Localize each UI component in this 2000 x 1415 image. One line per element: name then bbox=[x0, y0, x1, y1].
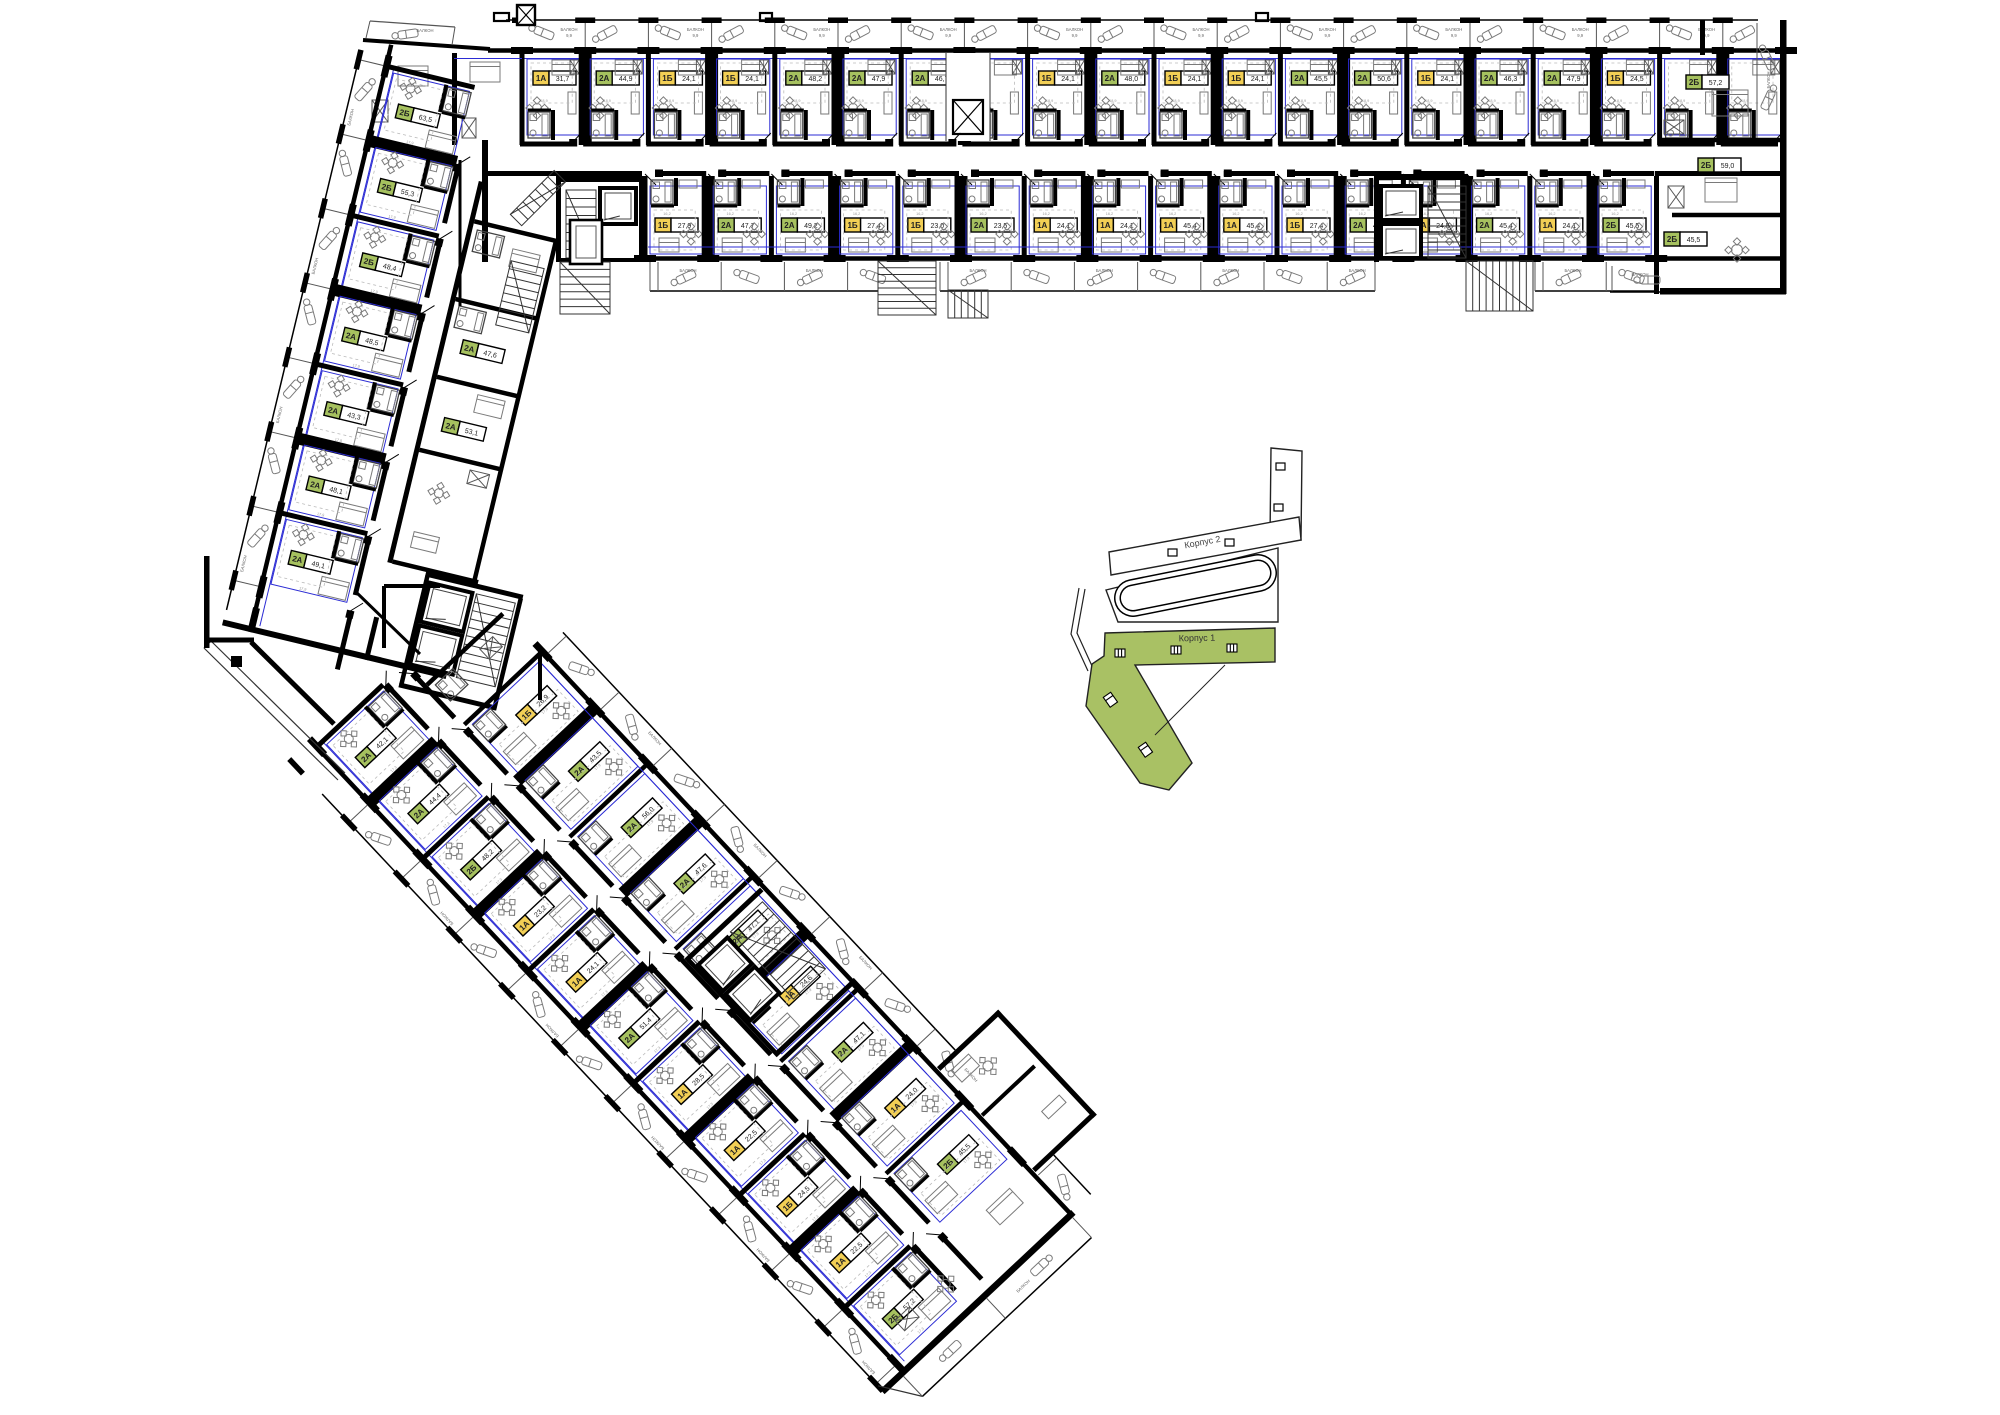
svg-text:1A: 1A bbox=[1037, 221, 1047, 230]
svg-text:9,9: 9,9 bbox=[819, 33, 825, 38]
svg-text:47,9: 47,9 bbox=[1567, 76, 1581, 83]
svg-text:47,9: 47,9 bbox=[872, 76, 886, 83]
svg-text:24,1: 24,1 bbox=[745, 76, 759, 83]
svg-text:1A: 1A bbox=[1227, 221, 1237, 230]
svg-text:БАЛКОН: БАЛКОН bbox=[687, 27, 704, 32]
svg-text:2Б: 2Б bbox=[1606, 221, 1616, 230]
svg-text:16,2: 16,2 bbox=[1232, 212, 1239, 216]
svg-text:48,0: 48,0 bbox=[1124, 76, 1138, 83]
svg-text:57,2: 57,2 bbox=[1709, 80, 1723, 87]
svg-text:БАЛКОН: БАЛКОН bbox=[970, 268, 987, 273]
svg-text:18,9: 18,9 bbox=[1172, 99, 1179, 103]
svg-text:1A: 1A bbox=[1543, 221, 1553, 230]
svg-text:1Б: 1Б bbox=[725, 74, 735, 83]
svg-text:9,9: 9,9 bbox=[1072, 33, 1078, 38]
svg-text:Корпус 1: Корпус 1 bbox=[1179, 633, 1216, 644]
svg-text:1Б: 1Б bbox=[1421, 74, 1431, 83]
svg-text:2A: 2A bbox=[1484, 74, 1494, 83]
svg-text:18,9: 18,9 bbox=[920, 99, 927, 103]
svg-text:18,9: 18,9 bbox=[730, 99, 737, 103]
svg-text:24,1: 24,1 bbox=[682, 76, 696, 83]
svg-text:48,2: 48,2 bbox=[808, 76, 822, 83]
svg-text:БАЛКОН: БАЛКОН bbox=[813, 27, 830, 32]
svg-text:16,2: 16,2 bbox=[790, 212, 797, 216]
svg-text:18,9: 18,9 bbox=[1046, 99, 1053, 103]
svg-text:24,1: 24,1 bbox=[1061, 76, 1075, 83]
svg-text:45,5: 45,5 bbox=[1314, 76, 1328, 83]
svg-text:18,9: 18,9 bbox=[1678, 99, 1685, 103]
svg-text:18,9: 18,9 bbox=[793, 99, 800, 103]
svg-text:БАЛКОН: БАЛКОН bbox=[806, 268, 823, 273]
svg-text:БАЛКОН: БАЛКОН bbox=[1445, 27, 1462, 32]
svg-text:БАЛКОН: БАЛКОН bbox=[1572, 27, 1589, 32]
svg-text:2Б: 2Б bbox=[1689, 78, 1699, 87]
svg-text:16,2: 16,2 bbox=[1548, 212, 1555, 216]
svg-text:16,2: 16,2 bbox=[1043, 212, 1050, 216]
svg-text:2A: 2A bbox=[974, 221, 984, 230]
svg-text:2A: 2A bbox=[784, 221, 794, 230]
svg-text:50,6: 50,6 bbox=[1377, 76, 1391, 83]
svg-text:9,9: 9,9 bbox=[1198, 33, 1204, 38]
svg-text:1Б: 1Б bbox=[1168, 74, 1178, 83]
svg-text:16,2: 16,2 bbox=[1359, 212, 1366, 216]
svg-text:16,2: 16,2 bbox=[663, 212, 670, 216]
svg-text:16,2: 16,2 bbox=[1169, 212, 1176, 216]
svg-text:16,2: 16,2 bbox=[1295, 212, 1302, 216]
svg-text:9,9: 9,9 bbox=[566, 33, 572, 38]
svg-text:1Б: 1Б bbox=[662, 74, 672, 83]
svg-text:БАЛКОН: БАЛКОН bbox=[940, 27, 957, 32]
svg-text:2A: 2A bbox=[915, 74, 925, 83]
svg-text:18,9: 18,9 bbox=[1425, 99, 1432, 103]
svg-text:9,9: 9,9 bbox=[1577, 33, 1583, 38]
svg-text:БАЛКОН: БАЛКОН bbox=[1766, 72, 1771, 89]
svg-text:18,9: 18,9 bbox=[1299, 99, 1306, 103]
svg-text:9,9: 9,9 bbox=[945, 33, 951, 38]
svg-text:18,9: 18,9 bbox=[1362, 99, 1369, 103]
svg-text:16,2: 16,2 bbox=[916, 212, 923, 216]
svg-text:1Б: 1Б bbox=[911, 221, 921, 230]
svg-text:2A: 2A bbox=[721, 221, 731, 230]
svg-text:2A: 2A bbox=[789, 74, 799, 83]
svg-text:БАЛКОН: БАЛКОН bbox=[680, 268, 697, 273]
svg-text:16,2: 16,2 bbox=[853, 212, 860, 216]
svg-text:18,9: 18,9 bbox=[1615, 99, 1622, 103]
svg-text:БАЛКОН: БАЛКОН bbox=[1349, 268, 1366, 273]
svg-text:БАЛКОН: БАЛКОН bbox=[561, 27, 578, 32]
svg-text:18,9: 18,9 bbox=[1236, 99, 1243, 103]
svg-text:БАЛКОН: БАЛКОН bbox=[1222, 268, 1239, 273]
svg-text:9,9: 9,9 bbox=[1451, 33, 1457, 38]
svg-text:1Б: 1Б bbox=[1610, 74, 1620, 83]
svg-text:БАЛКОН: БАЛКОН bbox=[1565, 268, 1582, 273]
svg-text:БАЛКОН: БАЛКОН bbox=[1066, 27, 1083, 32]
svg-text:45,5: 45,5 bbox=[1687, 237, 1701, 244]
svg-text:2A: 2A bbox=[1357, 74, 1367, 83]
svg-text:9,9: 9,9 bbox=[1324, 33, 1330, 38]
svg-text:46,3: 46,3 bbox=[1504, 76, 1518, 83]
svg-text:18,9: 18,9 bbox=[1488, 99, 1495, 103]
svg-text:59,0: 59,0 bbox=[1721, 163, 1735, 170]
svg-text:БАЛКОН: БАЛКОН bbox=[417, 28, 434, 33]
svg-text:2A: 2A bbox=[852, 74, 862, 83]
svg-text:18,9: 18,9 bbox=[667, 99, 674, 103]
svg-text:БАЛКОН: БАЛКОН bbox=[1632, 272, 1649, 277]
svg-text:16,2: 16,2 bbox=[727, 212, 734, 216]
svg-text:БАЛКОН: БАЛКОН bbox=[1193, 27, 1210, 32]
svg-text:БАЛКОН: БАЛКОН bbox=[1319, 27, 1336, 32]
svg-text:2A: 2A bbox=[1547, 74, 1557, 83]
svg-text:1Б: 1Б bbox=[847, 221, 857, 230]
svg-text:2Б: 2Б bbox=[1667, 235, 1677, 244]
svg-text:2Б: 2Б bbox=[1701, 161, 1711, 170]
svg-text:24,5: 24,5 bbox=[1630, 76, 1644, 83]
svg-text:1Б: 1Б bbox=[1041, 74, 1051, 83]
svg-text:18,9: 18,9 bbox=[604, 99, 611, 103]
svg-text:24,1: 24,1 bbox=[1251, 76, 1265, 83]
svg-text:2A: 2A bbox=[1105, 74, 1115, 83]
svg-text:16,2: 16,2 bbox=[1485, 212, 1492, 216]
svg-text:18,9: 18,9 bbox=[1552, 99, 1559, 103]
svg-text:24,1: 24,1 bbox=[1440, 76, 1454, 83]
svg-text:2A: 2A bbox=[1353, 221, 1363, 230]
svg-text:18,9: 18,9 bbox=[1741, 99, 1748, 103]
svg-text:18,9: 18,9 bbox=[1109, 99, 1116, 103]
svg-text:БАЛКОН: БАЛКОН bbox=[1096, 268, 1113, 273]
svg-text:1Б: 1Б bbox=[1290, 221, 1300, 230]
svg-text:16,2: 16,2 bbox=[1106, 212, 1113, 216]
svg-text:1A: 1A bbox=[1100, 221, 1110, 230]
svg-text:24,1: 24,1 bbox=[1188, 76, 1202, 83]
svg-text:16,2: 16,2 bbox=[979, 212, 986, 216]
svg-text:18,9: 18,9 bbox=[540, 99, 547, 103]
svg-text:2A: 2A bbox=[1294, 74, 1304, 83]
svg-text:2A: 2A bbox=[1479, 221, 1489, 230]
svg-text:1Б: 1Б bbox=[658, 221, 668, 230]
svg-text:1A: 1A bbox=[1163, 221, 1173, 230]
svg-text:31,7: 31,7 bbox=[556, 76, 570, 83]
svg-text:9,9: 9,9 bbox=[692, 33, 698, 38]
svg-text:1Б: 1Б bbox=[1231, 74, 1241, 83]
svg-text:16,2: 16,2 bbox=[1611, 212, 1618, 216]
svg-text:2A: 2A bbox=[599, 74, 609, 83]
svg-text:18,9: 18,9 bbox=[856, 99, 863, 103]
svg-text:1A: 1A bbox=[536, 74, 546, 83]
svg-text:44,9: 44,9 bbox=[619, 76, 633, 83]
